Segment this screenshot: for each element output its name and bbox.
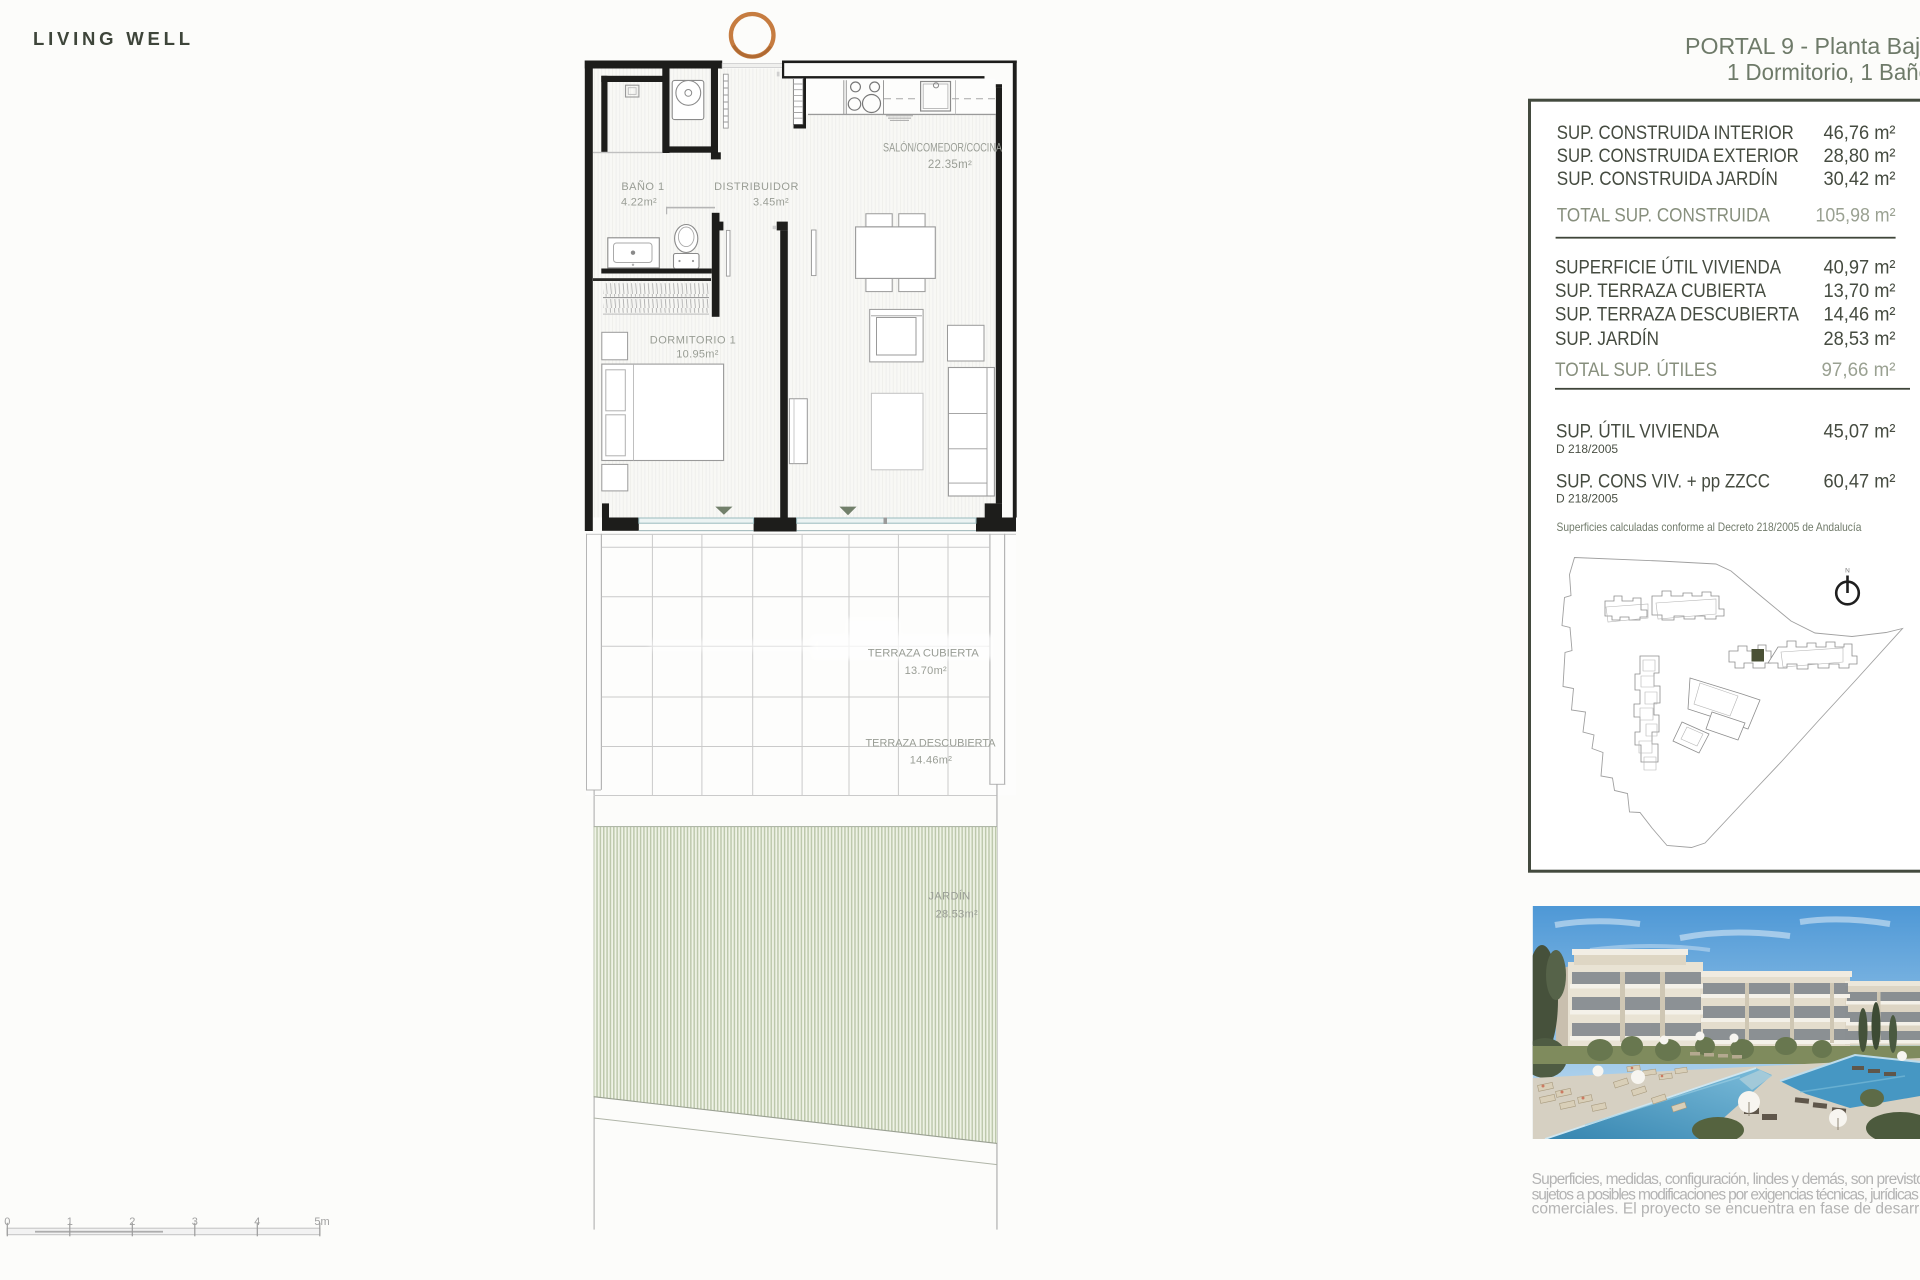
svg-text:14.46m²: 14.46m² <box>910 754 952 766</box>
svg-text:SUPERFICIE ÚTIL VIVIENDA: SUPERFICIE ÚTIL VIVIENDA <box>1555 257 1781 279</box>
svg-text:TOTAL SUP. CONSTRUIDA: TOTAL SUP. CONSTRUIDA <box>1557 206 1770 227</box>
svg-text:Superficies, medidas, configur: Superficies, medidas, configuración, lin… <box>1532 1171 1920 1188</box>
svg-text:28,80 m²: 28,80 m² <box>1824 146 1896 167</box>
svg-text:N: N <box>1845 568 1850 575</box>
svg-text:97,66 m²: 97,66 m² <box>1822 360 1896 381</box>
svg-text:TERRAZA DESCUBIERTA: TERRAZA DESCUBIERTA <box>866 737 997 749</box>
svg-text:13.70m²: 13.70m² <box>905 665 947 677</box>
svg-text:1: 1 <box>67 1216 73 1228</box>
svg-text:28,53 m²: 28,53 m² <box>1824 329 1896 350</box>
svg-text:SUP. CONS VIV. + pp ZZCC: SUP. CONS VIV. + pp ZZCC <box>1556 472 1770 493</box>
svg-text:DISTRIBUIDOR: DISTRIBUIDOR <box>714 181 799 193</box>
svg-text:SUP. CONSTRUIDA INTERIOR: SUP. CONSTRUIDA INTERIOR <box>1557 123 1794 144</box>
svg-text:SALÓN/COMEDOR/COCINA: SALÓN/COMEDOR/COCINA <box>883 142 1002 155</box>
svg-text:LIVING WELL: LIVING WELL <box>33 28 190 49</box>
svg-text:5m: 5m <box>314 1216 329 1228</box>
svg-text:comerciales. El proyecto se en: comerciales. El proyecto se encuentra en… <box>1532 1201 1920 1218</box>
svg-text:10.95m²: 10.95m² <box>676 349 718 361</box>
svg-text:BAÑO 1: BAÑO 1 <box>621 180 664 193</box>
svg-text:40,97 m²: 40,97 m² <box>1824 258 1896 279</box>
svg-text:28.53m²: 28.53m² <box>936 909 978 921</box>
svg-text:14,46 m²: 14,46 m² <box>1824 305 1896 326</box>
svg-text:3.45m²: 3.45m² <box>753 197 789 209</box>
svg-text:45,07 m²: 45,07 m² <box>1824 422 1896 443</box>
svg-text:4: 4 <box>254 1216 260 1228</box>
svg-text:SUP. TERRAZA DESCUBIERTA: SUP. TERRAZA DESCUBIERTA <box>1555 305 1799 326</box>
svg-text:1 Dormitorio, 1 Baño: 1 Dormitorio, 1 Baño <box>1727 59 1920 85</box>
svg-text:SUP. CONSTRUIDA JARDÍN: SUP. CONSTRUIDA JARDÍN <box>1557 169 1778 190</box>
svg-text:30,42 m²: 30,42 m² <box>1824 169 1896 190</box>
svg-text:Superficies calculadas conform: Superficies calculadas conforme al Decre… <box>1557 520 1862 534</box>
svg-text:SUP. JARDÍN: SUP. JARDÍN <box>1555 329 1659 350</box>
svg-text:D 218/2005: D 218/2005 <box>1556 442 1618 456</box>
svg-text:JARDÍN: JARDÍN <box>929 890 971 903</box>
svg-text:105,98 m²: 105,98 m² <box>1816 206 1896 227</box>
svg-text:SUP. TERRAZA CUBIERTA: SUP. TERRAZA CUBIERTA <box>1555 281 1766 302</box>
svg-text:3: 3 <box>192 1216 198 1228</box>
svg-text:0: 0 <box>4 1216 10 1228</box>
svg-text:TERRAZA CUBIERTA: TERRAZA CUBIERTA <box>868 648 980 660</box>
svg-text:SUP. CONSTRUIDA EXTERIOR: SUP. CONSTRUIDA EXTERIOR <box>1557 146 1799 167</box>
svg-text:TOTAL SUP. ÚTILES: TOTAL SUP. ÚTILES <box>1555 359 1717 381</box>
svg-text:4.22m²: 4.22m² <box>621 197 657 209</box>
svg-text:PORTAL 9 - Planta Baja: PORTAL 9 - Planta Baja <box>1685 33 1920 59</box>
svg-text:D 218/2005: D 218/2005 <box>1556 492 1618 506</box>
svg-text:13,70 m²: 13,70 m² <box>1824 281 1896 302</box>
svg-text:60,47 m²: 60,47 m² <box>1824 472 1896 493</box>
svg-text:DORMITORIO 1: DORMITORIO 1 <box>650 335 736 347</box>
svg-text:SUP. ÚTIL VIVIENDA: SUP. ÚTIL VIVIENDA <box>1556 421 1719 443</box>
svg-text:46,76 m²: 46,76 m² <box>1824 123 1896 144</box>
svg-text:22.35m²: 22.35m² <box>928 159 972 171</box>
svg-text:2: 2 <box>129 1216 135 1228</box>
